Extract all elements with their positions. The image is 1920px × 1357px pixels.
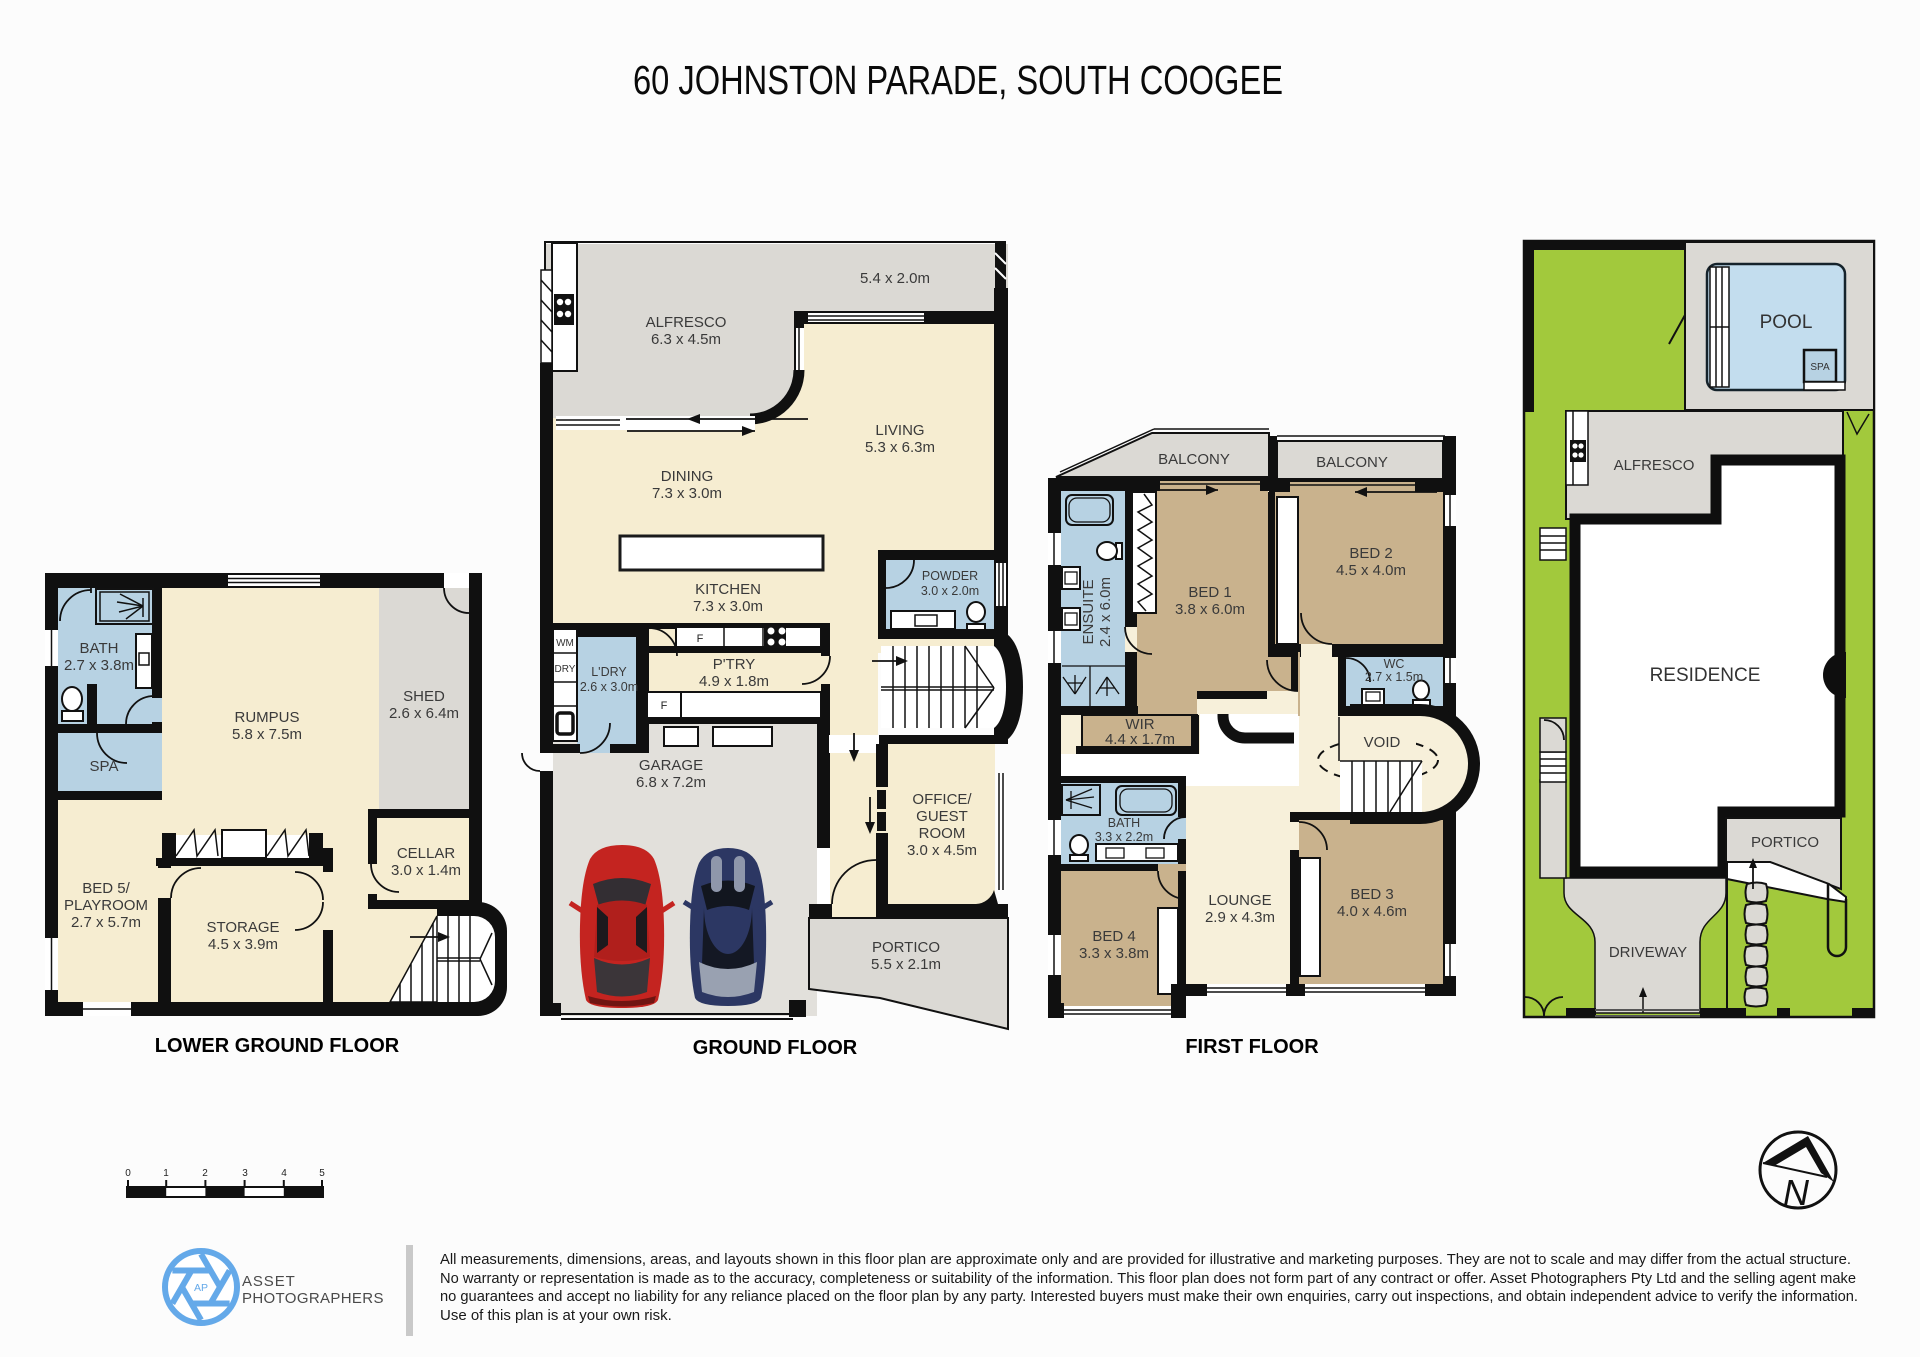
svg-text:LIVING: LIVING: [875, 422, 924, 439]
svg-text:2.6 x 6.4m: 2.6 x 6.4m: [389, 705, 459, 722]
svg-text:4.9 x 1.8m: 4.9 x 1.8m: [699, 673, 769, 690]
svg-text:PLAYROOM: PLAYROOM: [64, 897, 148, 914]
svg-text:0: 0: [125, 1168, 131, 1179]
svg-text:60 JOHNSTON PARADE, SOUTH COOG: 60 JOHNSTON PARADE, SOUTH COOGEE: [633, 57, 1283, 103]
svg-text:3.0 x 1.4m: 3.0 x 1.4m: [391, 862, 461, 879]
svg-text:DRIVEWAY: DRIVEWAY: [1609, 944, 1687, 961]
svg-text:GUEST: GUEST: [916, 808, 968, 825]
svg-text:2.7 x 5.7m: 2.7 x 5.7m: [71, 914, 141, 931]
svg-text:7.3 x 3.0m: 7.3 x 3.0m: [693, 598, 763, 615]
svg-text:7.3 x 3.0m: 7.3 x 3.0m: [652, 485, 722, 502]
svg-text:DINING: DINING: [661, 468, 714, 485]
svg-text:4: 4: [281, 1168, 287, 1179]
svg-text:SPA: SPA: [1810, 362, 1830, 373]
svg-text:no guarantees and accept no li: no guarantees and accept no liability fo…: [440, 1288, 1858, 1305]
svg-text:AP: AP: [194, 1282, 208, 1294]
svg-text:2.9 x 4.3m: 2.9 x 4.3m: [1205, 909, 1275, 926]
svg-text:3.0 x 2.0m: 3.0 x 2.0m: [921, 584, 979, 598]
svg-text:PHOTOGRAPHERS: PHOTOGRAPHERS: [242, 1290, 384, 1307]
svg-text:3.3 x 3.8m: 3.3 x 3.8m: [1079, 945, 1149, 962]
svg-text:ALFRESCO: ALFRESCO: [646, 314, 727, 331]
svg-text:P'TRY: P'TRY: [713, 656, 756, 673]
svg-text:BED 3: BED 3: [1350, 886, 1393, 903]
svg-text:PORTICO: PORTICO: [872, 939, 940, 956]
svg-text:N: N: [1783, 1172, 1810, 1213]
svg-text:3: 3: [242, 1168, 248, 1179]
svg-text:F: F: [697, 633, 704, 645]
svg-text:ENSUITE: ENSUITE: [1080, 579, 1097, 644]
svg-text:3.3 x 2.2m: 3.3 x 2.2m: [1095, 830, 1153, 844]
svg-text:VOID: VOID: [1364, 734, 1401, 751]
svg-text:4.5 x 4.0m: 4.5 x 4.0m: [1336, 562, 1406, 579]
svg-text:RUMPUS: RUMPUS: [234, 709, 299, 726]
svg-text:5: 5: [319, 1168, 325, 1179]
svg-text:POWDER: POWDER: [922, 569, 978, 583]
svg-text:ALFRESCO: ALFRESCO: [1614, 457, 1695, 474]
svg-text:GARAGE: GARAGE: [639, 757, 703, 774]
svg-text:L'DRY: L'DRY: [591, 665, 627, 679]
svg-text:BATH: BATH: [1108, 816, 1140, 830]
svg-text:BED 2: BED 2: [1349, 545, 1392, 562]
svg-text:STORAGE: STORAGE: [206, 919, 279, 936]
svg-text:2: 2: [202, 1168, 208, 1179]
svg-text:4.4 x 1.7m: 4.4 x 1.7m: [1105, 731, 1175, 748]
svg-text:POOL: POOL: [1760, 312, 1813, 333]
svg-text:SPA: SPA: [90, 758, 119, 775]
svg-text:6.8 x 7.2m: 6.8 x 7.2m: [636, 774, 706, 791]
svg-text:4.0 x 4.6m: 4.0 x 4.6m: [1337, 903, 1407, 920]
svg-text:5.3 x 6.3m: 5.3 x 6.3m: [865, 439, 935, 456]
svg-text:6.3 x 4.5m: 6.3 x 4.5m: [651, 331, 721, 348]
svg-text:PORTICO: PORTICO: [1751, 834, 1819, 851]
svg-text:4.5 x 3.9m: 4.5 x 3.9m: [208, 936, 278, 953]
svg-text:RESIDENCE: RESIDENCE: [1650, 665, 1761, 686]
svg-text:BED 1: BED 1: [1188, 584, 1231, 601]
svg-text:1: 1: [163, 1168, 169, 1179]
svg-text:GROUND FLOOR: GROUND FLOOR: [693, 1037, 858, 1059]
svg-text:SHED: SHED: [403, 688, 445, 705]
svg-text:DRY: DRY: [555, 664, 576, 675]
svg-text:CELLAR: CELLAR: [397, 845, 456, 862]
svg-text:3.8 x 6.0m: 3.8 x 6.0m: [1175, 601, 1245, 618]
svg-text:KITCHEN: KITCHEN: [695, 581, 761, 598]
svg-text:LOWER GROUND FLOOR: LOWER GROUND FLOOR: [155, 1035, 400, 1057]
svg-text:2.7 x 1.5m: 2.7 x 1.5m: [1365, 670, 1423, 684]
svg-text:5.8 x 7.5m: 5.8 x 7.5m: [232, 726, 302, 743]
svg-text:FIRST FLOOR: FIRST FLOOR: [1185, 1036, 1319, 1058]
svg-text:ASSET: ASSET: [242, 1273, 296, 1290]
svg-text:3.0 x 4.5m: 3.0 x 4.5m: [907, 842, 977, 859]
svg-text:LOUNGE: LOUNGE: [1208, 892, 1271, 909]
svg-text:WC: WC: [1384, 657, 1405, 671]
svg-text:Use of this plan is at your ow: Use of this plan is at your own risk.: [440, 1307, 672, 1324]
svg-text:2.7 x 3.8m: 2.7 x 3.8m: [64, 657, 134, 674]
svg-text:BED 5/: BED 5/: [82, 880, 130, 897]
svg-text:All measurements, dimensions,: All measurements, dimensions, areas, and…: [440, 1251, 1851, 1268]
svg-text:BALCONY: BALCONY: [1316, 454, 1388, 471]
svg-text:No warranty or representation: No warranty or representation is made as…: [440, 1270, 1856, 1287]
svg-text:BATH: BATH: [80, 640, 119, 657]
svg-text:2.6 x 3.0m: 2.6 x 3.0m: [580, 680, 638, 694]
svg-text:BALCONY: BALCONY: [1158, 451, 1230, 468]
svg-text:WM: WM: [556, 638, 574, 649]
svg-text:5.5 x 2.1m: 5.5 x 2.1m: [871, 956, 941, 973]
svg-text:ROOM: ROOM: [919, 825, 966, 842]
svg-text:BED 4: BED 4: [1092, 928, 1135, 945]
svg-text:5.4 x 2.0m: 5.4 x 2.0m: [860, 270, 930, 287]
svg-text:OFFICE/: OFFICE/: [912, 791, 972, 808]
svg-text:F: F: [661, 700, 668, 712]
svg-text:2.4 x 6.0m: 2.4 x 6.0m: [1097, 577, 1114, 647]
